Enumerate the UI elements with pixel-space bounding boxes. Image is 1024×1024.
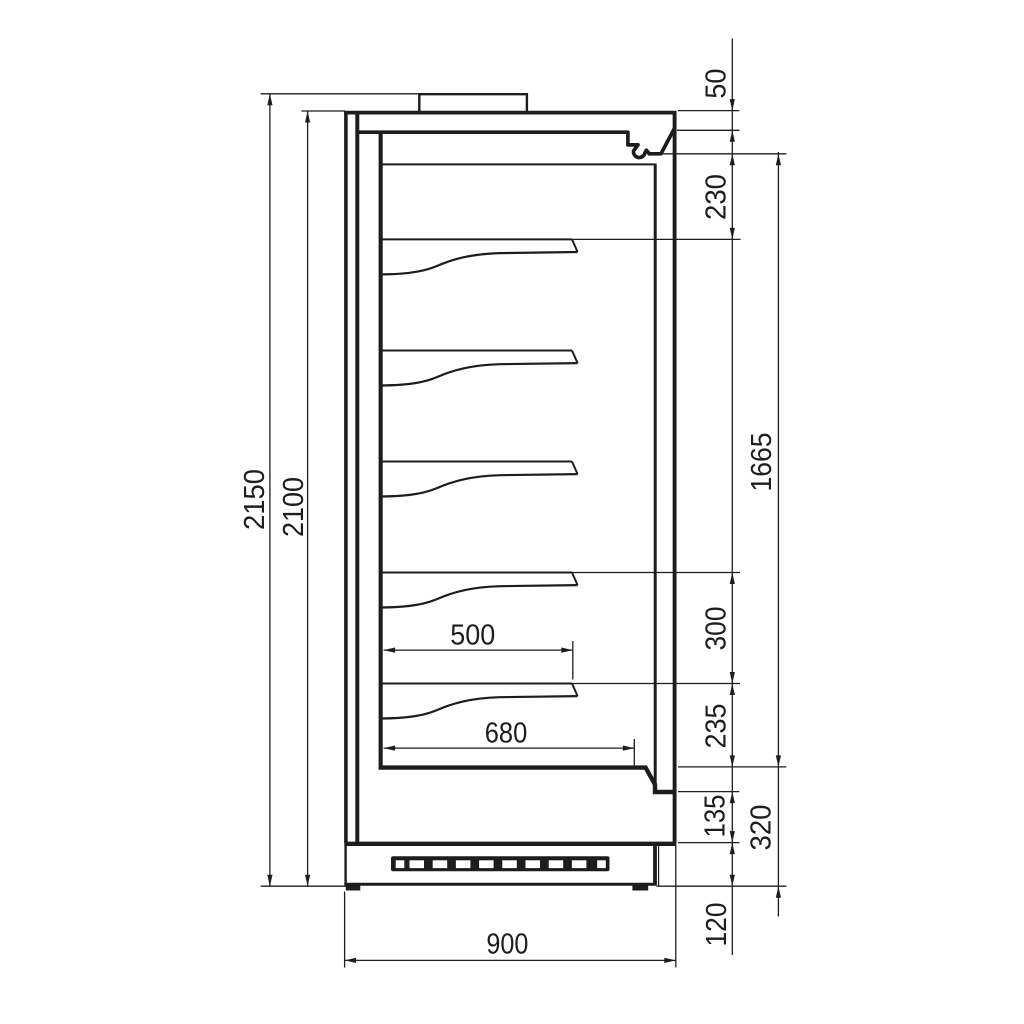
svg-text:120: 120 — [701, 903, 733, 947]
svg-text:300: 300 — [701, 607, 733, 651]
svg-text:235: 235 — [701, 704, 733, 749]
svg-text:500: 500 — [450, 620, 495, 652]
svg-text:320: 320 — [746, 805, 778, 851]
svg-text:50: 50 — [701, 69, 733, 99]
svg-text:900: 900 — [486, 929, 528, 961]
svg-text:2150: 2150 — [239, 469, 271, 530]
svg-text:230: 230 — [701, 174, 733, 220]
svg-text:680: 680 — [485, 717, 528, 749]
svg-text:135: 135 — [700, 795, 732, 838]
svg-text:2100: 2100 — [278, 477, 310, 537]
svg-text:1665: 1665 — [746, 433, 778, 492]
